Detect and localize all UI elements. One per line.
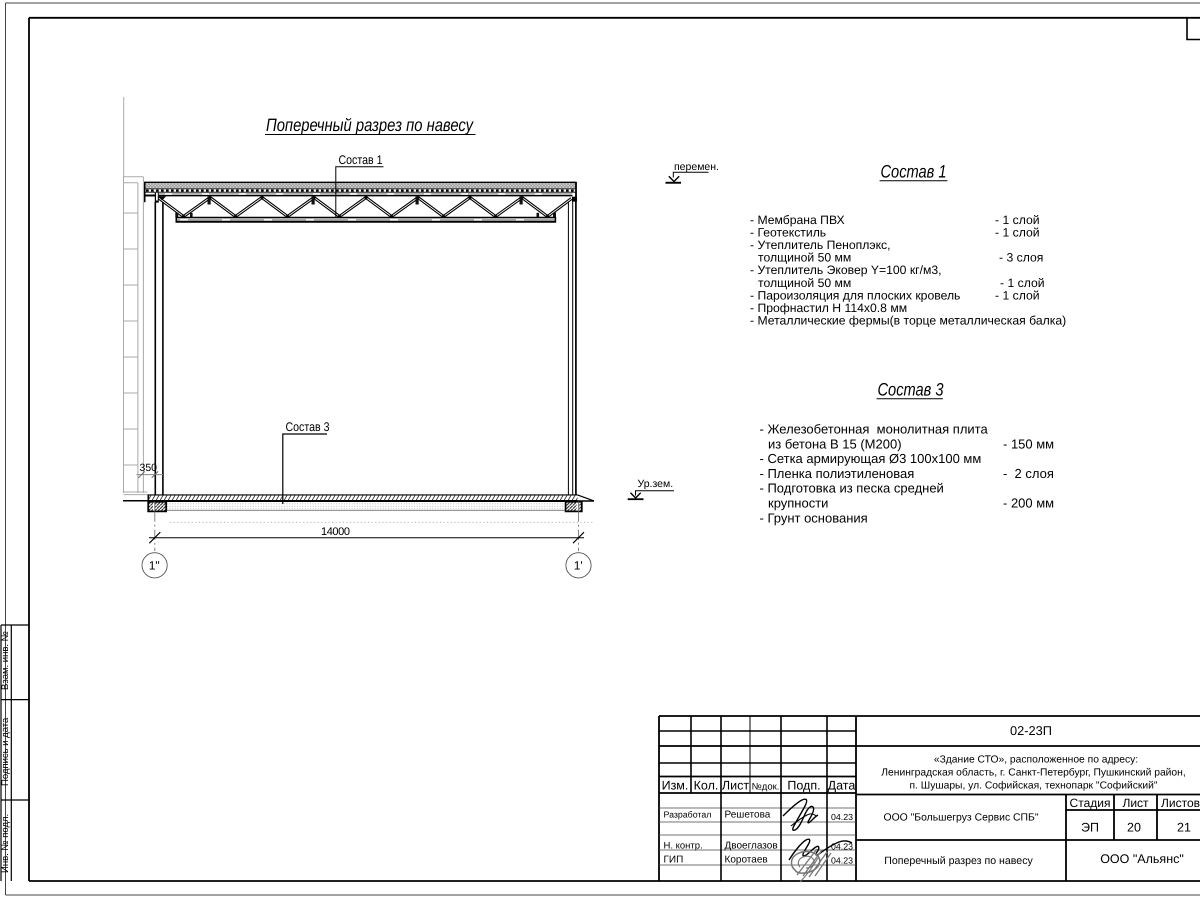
svg-text:п. Шушары, ул. Софийская, техн: п. Шушары, ул. Софийская, технопарк "Соф… — [909, 781, 1157, 792]
svg-text:350: 350 — [140, 462, 158, 474]
svg-text:Дата: Дата — [828, 779, 856, 793]
svg-text:Изм.: Изм. — [662, 779, 689, 793]
svg-text:Н. контр.: Н. контр. — [664, 841, 703, 852]
svg-text:Состав 1: Состав 1 — [339, 153, 383, 167]
svg-text:Подпись и дата: Подпись и дата — [0, 717, 11, 786]
svg-text:Состав 3: Состав 3 — [878, 380, 944, 400]
svg-text:ГИП: ГИП — [664, 855, 684, 866]
svg-text:- 150 мм: - 150 мм — [1003, 436, 1054, 451]
svg-text:Листов: Листов — [1161, 796, 1200, 810]
svg-text:Инв. № подл.: Инв. № подл. — [0, 814, 11, 873]
svg-text:02-23П: 02-23П — [1010, 723, 1052, 738]
svg-text:04.23: 04.23 — [831, 842, 853, 852]
svg-text:- Сетка армирующая Ø3 100х100: - Сетка армирующая Ø3 100х100 мм — [760, 451, 982, 466]
svg-text:Коротаев: Коротаев — [725, 855, 768, 866]
svg-text:Стадия: Стадия — [1070, 796, 1111, 810]
svg-text:- Пленка полиэтиленовая: - Пленка полиэтиленовая — [760, 466, 915, 481]
svg-text:Двоеглазов: Двоеглазов — [725, 841, 778, 852]
svg-text:перемен.: перемен. — [674, 161, 719, 173]
svg-text:Ур.зем.: Ур.зем. — [638, 478, 674, 490]
svg-text:Лист: Лист — [1122, 796, 1149, 810]
svg-text:Решетова: Решетова — [725, 810, 771, 821]
svg-text:ООО "Большегруз Сервис СПБ": ООО "Большегруз Сервис СПБ" — [883, 813, 1038, 824]
svg-text:Подп.: Подп. — [787, 779, 820, 793]
svg-text:1": 1" — [149, 558, 160, 572]
svg-text:1': 1' — [574, 558, 583, 572]
svg-text:- Грунт основания: - Грунт основания — [760, 510, 868, 525]
svg-text:- 200 мм: - 200 мм — [1003, 496, 1054, 511]
svg-text:20: 20 — [1127, 821, 1141, 835]
svg-text:№док.: №док. — [752, 782, 780, 793]
svg-text:Поперечный разрез по навесу: Поперечный разрез по навесу — [884, 855, 1033, 867]
svg-text:крупности: крупности — [768, 496, 828, 511]
svg-text:04.23: 04.23 — [831, 812, 853, 822]
svg-text:из бетона В 15 (М200): из бетона В 15 (М200) — [768, 436, 902, 451]
svg-text:- 2 слоя: - 2 слоя — [1003, 466, 1054, 481]
svg-text:Лист: Лист — [722, 779, 749, 793]
svg-text:Ленинградская область, г. Санк: Ленинградская область, г. Санкт-Петербур… — [881, 767, 1185, 778]
svg-text:- Железобетонная монолитная п: - Железобетонная монолитная плита — [760, 422, 989, 437]
svg-text:Состав 1: Состав 1 — [881, 162, 947, 182]
svg-text:Взам. инв. №: Взам. инв. № — [0, 631, 11, 690]
svg-text:14000: 14000 — [321, 526, 350, 538]
svg-text:04.23: 04.23 — [831, 856, 853, 866]
svg-text:21: 21 — [1177, 821, 1191, 835]
svg-text:ЭП: ЭП — [1081, 821, 1099, 835]
svg-text:Поперечный разрез по навесу: Поперечный разрез по навесу — [266, 115, 474, 135]
svg-text:Кол.: Кол. — [694, 779, 719, 793]
svg-text:- 3 слоя: - 3 слоя — [999, 251, 1043, 265]
svg-text:Разработал: Разработал — [664, 810, 712, 820]
svg-text:- 1 слой: - 1 слой — [995, 225, 1040, 239]
svg-text:- Металлические фермы(в торце: - Металлические фермы(в торце металличес… — [750, 314, 1066, 328]
svg-text:ООО "Альянс": ООО "Альянс" — [1100, 852, 1184, 866]
svg-text:- 1 слой: - 1 слой — [995, 288, 1040, 302]
svg-text:- Подготовка из песка средней: - Подготовка из песка средней — [760, 481, 944, 496]
svg-text:Состав 3: Состав 3 — [286, 420, 330, 434]
svg-text:«Здание СТО», расположенное по: «Здание СТО», расположенное по адресу: — [934, 754, 1138, 765]
